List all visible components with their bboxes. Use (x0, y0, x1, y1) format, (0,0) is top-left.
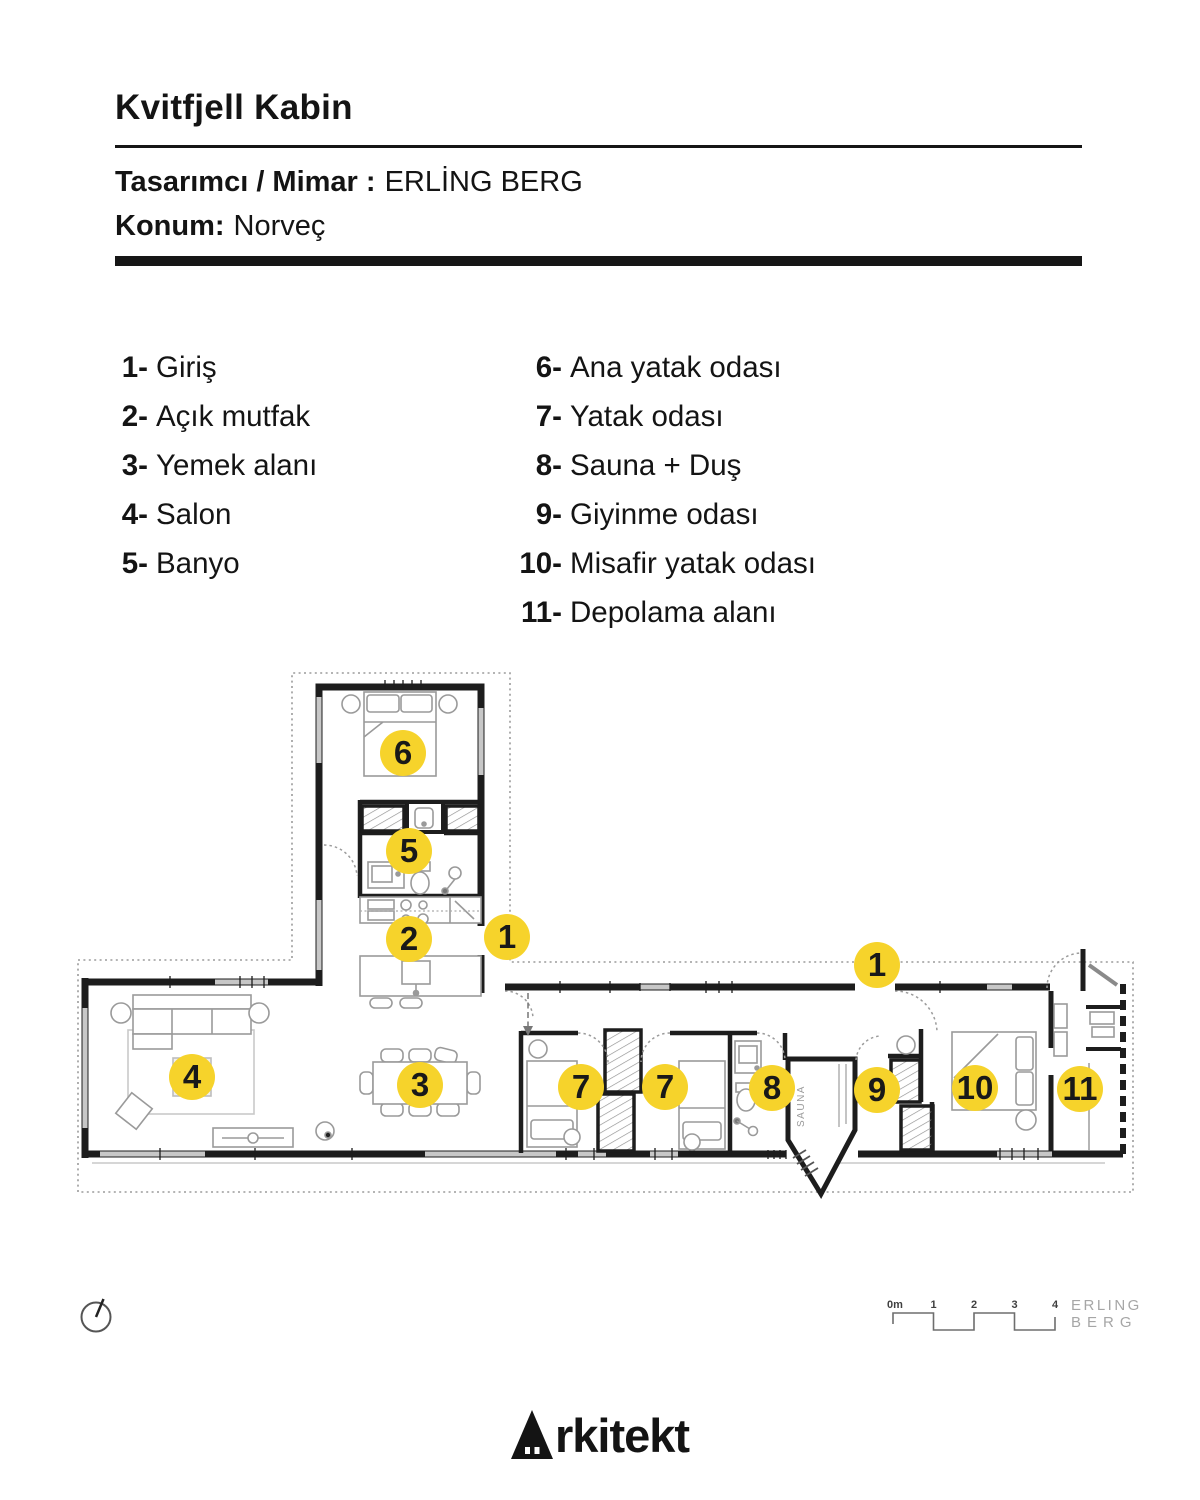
scale-label: 4 (1052, 1299, 1059, 1311)
scale-bar: 0m 1 2 3 4 (887, 1299, 1059, 1330)
dressing-room-9 (897, 1036, 915, 1054)
scale-label: 0m (887, 1299, 903, 1311)
section-mark (523, 993, 533, 1036)
sauna-room: SAUNA (788, 1059, 855, 1194)
door-arcs (324, 845, 1081, 1063)
architect-signature: ERLING BERG (1071, 1297, 1142, 1331)
scale-label: 3 (1011, 1299, 1017, 1311)
dining-area (360, 1047, 480, 1116)
living-room (111, 995, 334, 1147)
floor-plan: SAUNA (0, 0, 1200, 1500)
architect-name-line1: ERLING (1071, 1297, 1142, 1314)
house-a-icon (511, 1409, 553, 1459)
arkitekt-logo: rkitekt (0, 1409, 1200, 1459)
storage-11 (1089, 965, 1117, 1150)
kitchen (360, 897, 481, 1008)
scale-label: 2 (971, 1299, 977, 1311)
logo-text: rkitekt (555, 1412, 689, 1459)
room-6-master-bedroom (342, 692, 457, 776)
bathroom-8 (734, 1041, 761, 1136)
bedroom-7a (527, 1040, 580, 1147)
scale-label: 1 (930, 1299, 936, 1311)
sauna-label: SAUNA (796, 1085, 807, 1127)
bedroom-7b (679, 1061, 725, 1150)
compass-icon (82, 1299, 111, 1332)
architect-name-line2: BERG (1071, 1314, 1142, 1331)
